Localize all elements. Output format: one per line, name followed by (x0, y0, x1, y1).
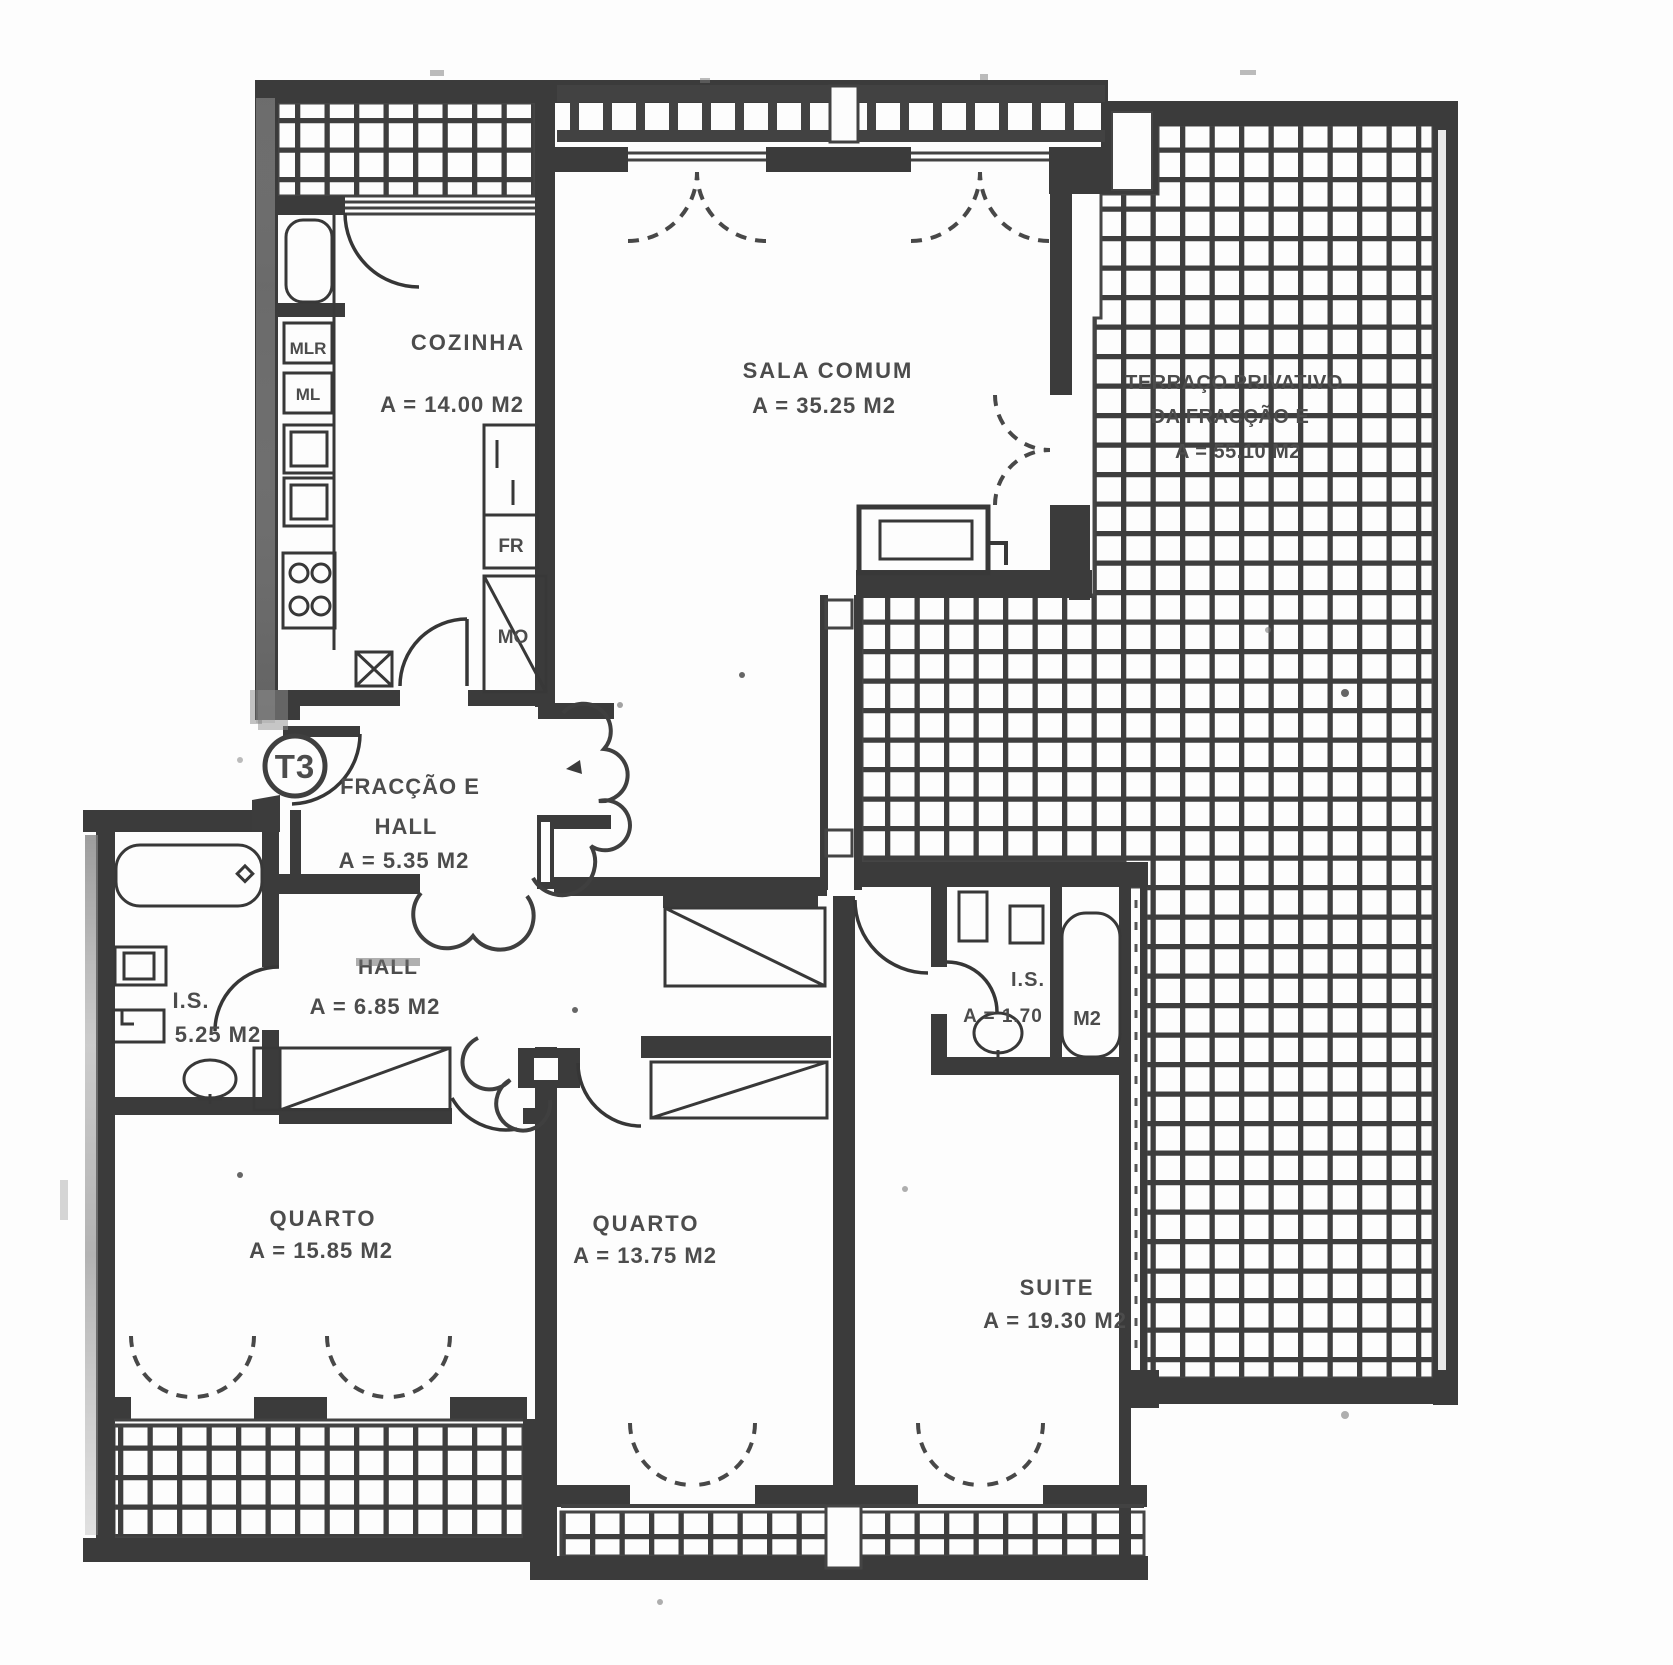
svg-text:HALL: HALL (375, 814, 438, 839)
svg-text:A = 14.00 M2: A = 14.00 M2 (380, 392, 524, 417)
svg-text:MO: MO (498, 627, 529, 648)
svg-text:MLR: MLR (290, 339, 327, 358)
svg-text:SALA COMUM: SALA COMUM (743, 358, 914, 383)
svg-text:QUARTO: QUARTO (270, 1206, 377, 1231)
svg-text:A = 55.10 M2: A = 55.10 M2 (1175, 441, 1301, 463)
svg-text:I.S.: I.S. (172, 988, 209, 1013)
svg-text:5.25 M2: 5.25 M2 (175, 1022, 262, 1047)
svg-text:FR: FR (498, 536, 524, 557)
svg-text:A = 5.35 M2: A = 5.35 M2 (339, 848, 470, 873)
svg-text:DA FRACÇÃO E: DA FRACÇÃO E (1151, 405, 1310, 428)
svg-text:A = 6.85 M2: A = 6.85 M2 (310, 994, 441, 1019)
svg-text:I.S.: I.S. (1011, 969, 1045, 991)
svg-text:FRACÇÃO E: FRACÇÃO E (340, 774, 480, 799)
svg-text:QUARTO: QUARTO (593, 1211, 700, 1236)
svg-text:A = 15.85 M2: A = 15.85 M2 (249, 1238, 393, 1263)
svg-text:A = 19.30 M2: A = 19.30 M2 (983, 1308, 1127, 1333)
svg-text:A = 1.70: A = 1.70 (963, 1006, 1043, 1027)
svg-text:SUITE: SUITE (1020, 1275, 1095, 1300)
svg-text:A = 13.75 M2: A = 13.75 M2 (573, 1243, 717, 1268)
svg-text:M2: M2 (1073, 1008, 1101, 1030)
svg-text:ML: ML (296, 385, 321, 404)
svg-text:COZINHA: COZINHA (411, 330, 525, 355)
svg-text:A = 35.25 M2: A = 35.25 M2 (752, 393, 896, 418)
svg-text:TERRAÇO PRIVATIVO: TERRAÇO PRIVATIVO (1125, 372, 1343, 394)
svg-text:T3: T3 (275, 748, 316, 785)
